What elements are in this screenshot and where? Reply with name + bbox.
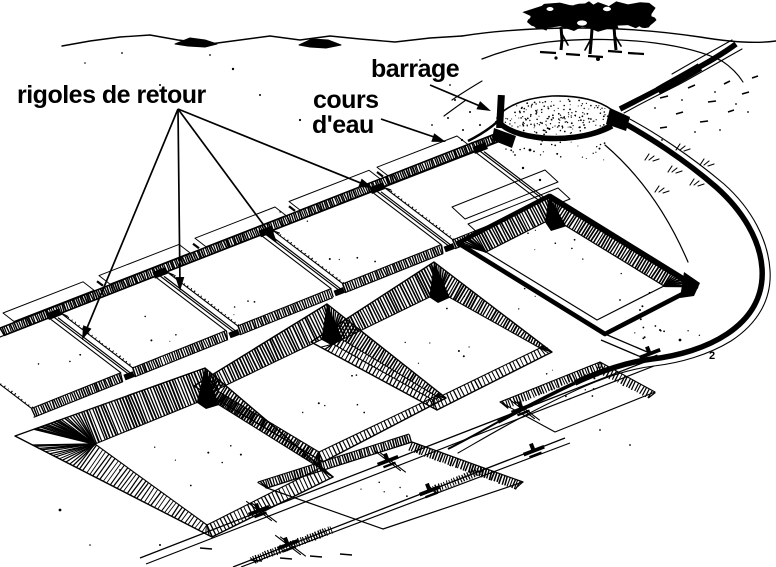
svg-text:barrage: barrage bbox=[371, 55, 460, 83]
svg-text:cours: cours bbox=[313, 86, 379, 114]
svg-text:2: 2 bbox=[709, 350, 715, 362]
svg-text:rigoles de retour: rigoles de retour bbox=[17, 81, 207, 109]
svg-text:d'eau: d'eau bbox=[312, 111, 374, 139]
